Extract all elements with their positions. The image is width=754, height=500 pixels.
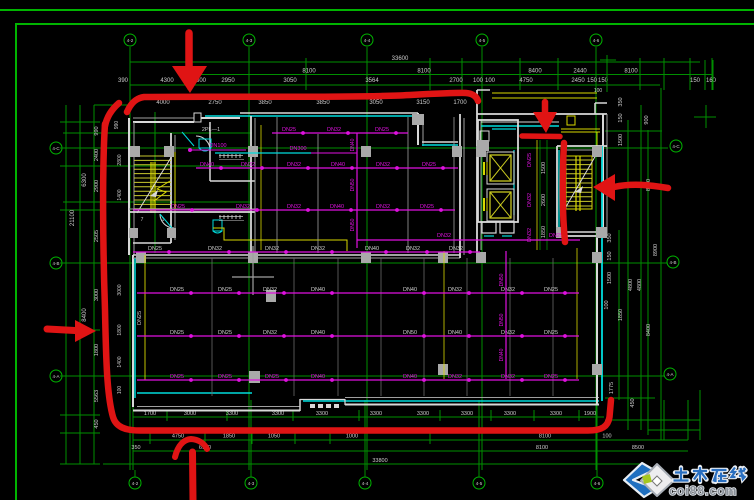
svg-text:DN100: DN100 — [209, 143, 226, 149]
svg-text:DN32: DN32 — [287, 204, 301, 210]
svg-text:4-B: 4-B — [52, 261, 59, 266]
svg-text:DN32: DN32 — [241, 162, 255, 168]
svg-text:3300: 3300 — [504, 411, 516, 417]
svg-text:2PL—1: 2PL—1 — [202, 127, 220, 133]
svg-text:4-2: 4-2 — [132, 481, 139, 486]
svg-text:1800: 1800 — [94, 344, 100, 356]
svg-text:150: 150 — [587, 78, 598, 84]
svg-text:DN25: DN25 — [218, 287, 232, 293]
svg-text:2400: 2400 — [94, 149, 100, 161]
svg-text:4-C: 4-C — [672, 144, 680, 149]
svg-text:4-4: 4-4 — [362, 481, 369, 486]
svg-text:3000: 3000 — [184, 411, 196, 417]
svg-text:3564: 3564 — [365, 78, 379, 84]
svg-text:DN50: DN50 — [350, 218, 356, 231]
svg-text:3850: 3850 — [316, 100, 330, 106]
svg-text:7: 7 — [141, 217, 144, 223]
svg-text:8400: 8400 — [82, 308, 88, 322]
svg-text:DN25: DN25 — [170, 374, 184, 380]
svg-text:DN25: DN25 — [420, 204, 434, 210]
svg-text:DN40: DN40 — [311, 287, 325, 293]
svg-text:1775: 1775 — [609, 382, 615, 394]
svg-text:DN32: DN32 — [287, 162, 301, 168]
svg-text:3000: 3000 — [117, 284, 123, 295]
svg-text:3150: 3150 — [416, 100, 430, 106]
svg-text:DN25: DN25 — [170, 287, 184, 293]
svg-text:4-5: 4-5 — [479, 38, 486, 43]
svg-text:1400: 1400 — [117, 356, 123, 367]
svg-text:3050: 3050 — [369, 100, 383, 106]
svg-text:1500: 1500 — [607, 272, 613, 284]
svg-text:DN32: DN32 — [208, 246, 222, 252]
svg-text:4-2: 4-2 — [127, 38, 134, 43]
svg-text:33800: 33800 — [372, 458, 387, 464]
svg-text:DN32: DN32 — [236, 204, 250, 210]
svg-text:DN40: DN40 — [499, 348, 505, 361]
svg-text:DN25: DN25 — [170, 330, 184, 336]
svg-text:DN32: DN32 — [527, 193, 533, 207]
svg-text:2440: 2440 — [573, 69, 587, 75]
svg-text:DN25: DN25 — [218, 330, 232, 336]
svg-text:21100: 21100 — [70, 209, 76, 226]
svg-text:DN25: DN25 — [282, 127, 296, 133]
svg-text:4750: 4750 — [519, 78, 533, 84]
svg-text:1900: 1900 — [584, 411, 596, 417]
svg-text:2950: 2950 — [221, 78, 235, 84]
svg-text:1500: 1500 — [618, 134, 624, 146]
svg-text:100: 100 — [602, 434, 611, 440]
svg-text:DN32: DN32 — [437, 233, 451, 239]
svg-text:4-C: 4-C — [52, 146, 60, 151]
svg-text:8400: 8400 — [646, 324, 652, 336]
svg-text:8500: 8500 — [632, 445, 644, 451]
svg-text:DN32: DN32 — [263, 287, 277, 293]
svg-text:1500: 1500 — [541, 162, 547, 174]
svg-text:8900: 8900 — [653, 244, 659, 256]
svg-text:DN25: DN25 — [148, 246, 162, 252]
svg-text:4-3: 4-3 — [248, 481, 255, 486]
svg-text:DN25: DN25 — [527, 153, 533, 167]
svg-text:DN32: DN32 — [327, 127, 341, 133]
svg-text:3300: 3300 — [461, 411, 473, 417]
svg-text:3300: 3300 — [417, 411, 429, 417]
svg-text:DN32: DN32 — [265, 246, 279, 252]
svg-text:2750: 2750 — [208, 100, 222, 106]
svg-text:4000: 4000 — [156, 100, 170, 106]
svg-text:3050: 3050 — [283, 78, 297, 84]
svg-text:8100: 8100 — [536, 445, 548, 451]
svg-text:1700: 1700 — [453, 100, 467, 106]
svg-text:4-A: 4-A — [666, 372, 673, 377]
svg-text:8400: 8400 — [528, 69, 542, 75]
svg-text:160: 160 — [706, 78, 717, 84]
svg-text:100: 100 — [473, 78, 484, 84]
svg-text:150: 150 — [607, 251, 613, 260]
svg-text:DN32: DN32 — [501, 374, 515, 380]
svg-text:DN32: DN32 — [376, 162, 390, 168]
svg-text:4-A: 4-A — [52, 374, 59, 379]
svg-text:DN25: DN25 — [375, 127, 389, 133]
svg-text:DN50: DN50 — [499, 313, 505, 326]
svg-text:390: 390 — [118, 78, 129, 84]
svg-text:4-3: 4-3 — [246, 38, 253, 43]
svg-text:150: 150 — [618, 113, 624, 122]
svg-text:DN32: DN32 — [448, 287, 462, 293]
svg-text:4800: 4800 — [637, 279, 643, 291]
svg-text:3300: 3300 — [550, 411, 562, 417]
svg-text:900: 900 — [644, 115, 650, 124]
svg-text:DN40: DN40 — [365, 246, 379, 252]
svg-text:100: 100 — [117, 386, 123, 395]
svg-text:3300: 3300 — [272, 411, 284, 417]
svg-text:DN32: DN32 — [448, 374, 462, 380]
svg-text:4800: 4800 — [628, 279, 634, 291]
svg-text:DN32: DN32 — [501, 330, 515, 336]
svg-text:450: 450 — [630, 398, 636, 407]
svg-text:3000: 3000 — [94, 289, 100, 301]
svg-text:350: 350 — [607, 233, 613, 242]
svg-text:3850: 3850 — [258, 100, 272, 106]
svg-text:8100: 8100 — [624, 69, 638, 75]
svg-text:DN32: DN32 — [376, 204, 390, 210]
svg-text:DN40: DN40 — [311, 374, 325, 380]
svg-text:6300: 6300 — [82, 173, 88, 187]
svg-text:1850: 1850 — [618, 309, 624, 321]
svg-text:DN40: DN40 — [403, 287, 417, 293]
svg-text:990: 990 — [94, 126, 100, 135]
svg-text:DN25: DN25 — [544, 330, 558, 336]
svg-text:4-4: 4-4 — [364, 38, 371, 43]
svg-text:4750: 4750 — [172, 434, 184, 440]
svg-text:8100: 8100 — [539, 434, 551, 440]
svg-text:DN32: DN32 — [449, 246, 463, 252]
svg-text:2600: 2600 — [541, 194, 547, 206]
svg-text:100: 100 — [485, 78, 496, 84]
svg-text:2505: 2505 — [94, 230, 100, 242]
svg-text:1800: 1800 — [117, 324, 123, 335]
svg-text:2800: 2800 — [117, 154, 123, 165]
svg-text:DN40: DN40 — [448, 330, 462, 336]
svg-text:3300: 3300 — [226, 411, 238, 417]
svg-text:DN40: DN40 — [311, 330, 325, 336]
svg-text:8100: 8100 — [417, 69, 431, 75]
svg-text:8100: 8100 — [302, 69, 316, 75]
svg-text:33600: 33600 — [392, 56, 409, 62]
svg-text:2700: 2700 — [449, 78, 463, 84]
svg-text:DN25: DN25 — [549, 233, 563, 239]
svg-text:DN25: DN25 — [265, 374, 279, 380]
svg-text:DN25: DN25 — [544, 374, 558, 380]
svg-text:DN25: DN25 — [544, 287, 558, 293]
svg-text:coi88.com: coi88.com — [669, 484, 737, 498]
svg-text:4-5: 4-5 — [476, 481, 483, 486]
svg-text:DN25: DN25 — [218, 374, 232, 380]
svg-text:1000: 1000 — [346, 434, 358, 440]
svg-text:DN32: DN32 — [406, 246, 420, 252]
svg-text:DN25: DN25 — [137, 311, 143, 325]
svg-text:1400: 1400 — [117, 189, 123, 200]
svg-text:DN40: DN40 — [331, 162, 345, 168]
svg-text:1850: 1850 — [223, 434, 235, 440]
svg-text:5563: 5563 — [94, 390, 100, 402]
svg-text:3300: 3300 — [370, 411, 382, 417]
svg-text:DN32: DN32 — [311, 246, 325, 252]
svg-text:150: 150 — [690, 78, 701, 84]
svg-text:350: 350 — [618, 97, 624, 106]
svg-text:990: 990 — [114, 121, 120, 130]
svg-text:DN25: DN25 — [422, 162, 436, 168]
svg-text:3300: 3300 — [316, 411, 328, 417]
svg-text:DN40: DN40 — [403, 374, 417, 380]
svg-text:2900: 2900 — [94, 180, 100, 192]
svg-text:1050: 1050 — [268, 434, 280, 440]
svg-text:DN40: DN40 — [350, 138, 356, 151]
svg-text:DN50: DN50 — [350, 178, 356, 191]
svg-text:DN50: DN50 — [403, 330, 417, 336]
svg-text:DN32: DN32 — [263, 330, 277, 336]
svg-text:DN40: DN40 — [330, 204, 344, 210]
svg-text:4-6: 4-6 — [593, 38, 600, 43]
svg-text:DN25: DN25 — [171, 204, 185, 210]
svg-text:DN50: DN50 — [499, 273, 505, 286]
svg-text:350: 350 — [131, 445, 140, 451]
svg-text:100: 100 — [604, 300, 610, 309]
svg-text:DN300: DN300 — [289, 146, 306, 152]
svg-text:DN40: DN40 — [200, 162, 214, 168]
svg-text:1850: 1850 — [541, 226, 547, 238]
svg-text:4-B: 4-B — [669, 260, 676, 265]
svg-text:4300: 4300 — [160, 78, 174, 84]
svg-text:1700: 1700 — [144, 411, 156, 417]
svg-text:DN32: DN32 — [501, 287, 515, 293]
svg-text:2450: 2450 — [571, 78, 585, 84]
svg-text:450: 450 — [94, 419, 100, 428]
svg-text:4-6: 4-6 — [594, 481, 601, 486]
